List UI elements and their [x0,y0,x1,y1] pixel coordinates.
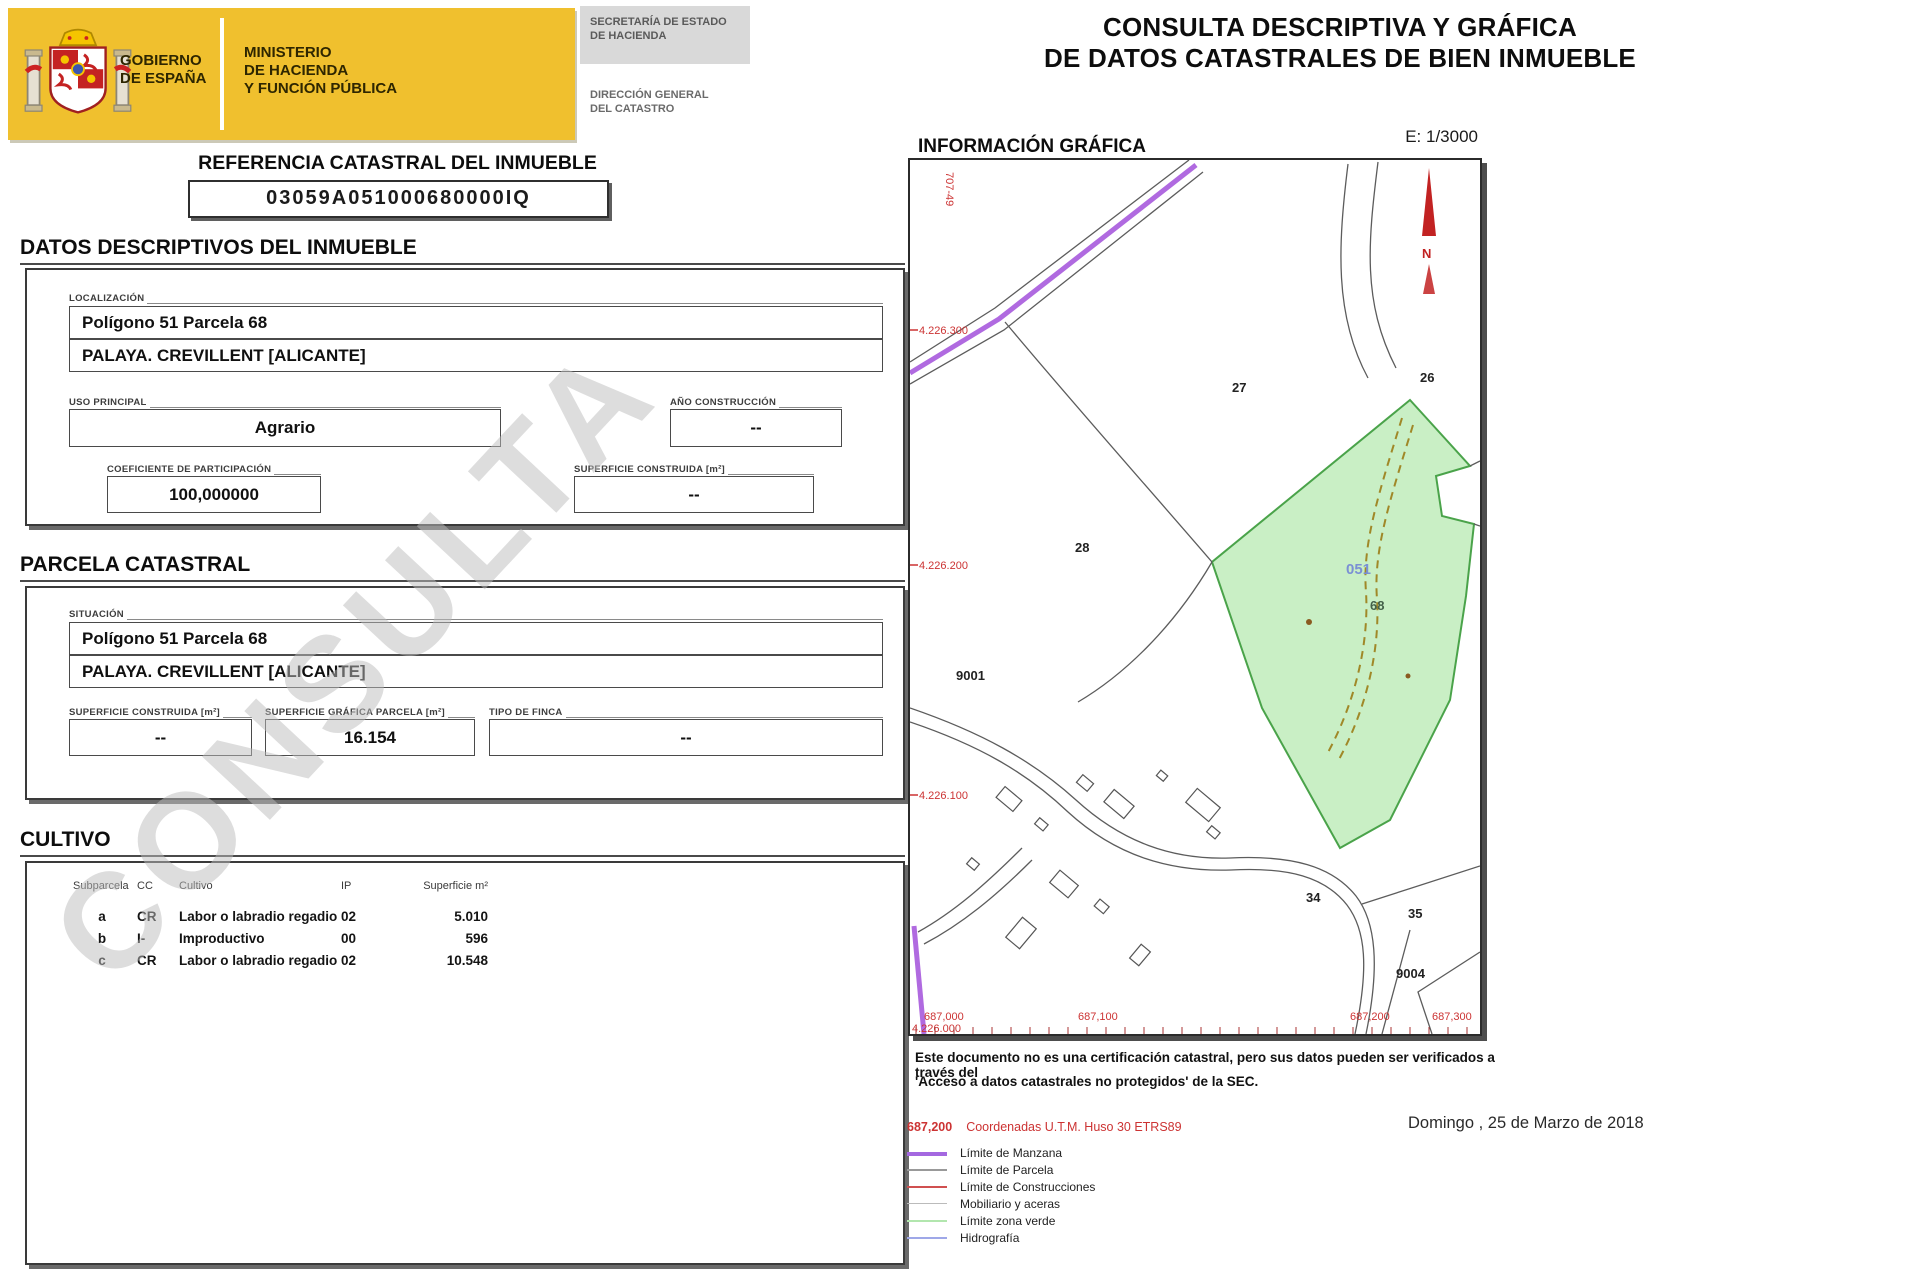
tipo-finca-label: TIPO DE FINCA [489,706,883,718]
sup-grafica-value: 16.154 [265,719,475,756]
parcel-051-green-area [1212,400,1474,848]
parcela-catastral-box: SITUACIÓN Polígono 51 Parcela 68 PALAYA.… [25,586,905,800]
coord-label: 687,000 [924,1011,964,1023]
situacion-label: SITUACIÓN [69,608,883,620]
road-label: 707-49 [943,172,955,206]
coord-label: 687,200 [1350,1011,1390,1023]
cultivo-box: Subparcela CC Cultivo IP Superficie m² a… [25,861,905,1265]
parcel-label-34: 34 [1306,890,1321,905]
parcel-label-051: 051 [1346,561,1371,578]
parcel-boundary [1362,866,1480,904]
ano-construccion-value: -- [670,409,842,447]
banner-divider [220,18,224,130]
sup-construida-value: -- [69,719,252,756]
cadastral-map: N 707-49 4.226.300 4.226.200 4.226.100 4… [910,160,1480,1034]
coord-label: 687,100 [1078,1011,1118,1023]
localizacion-label: LOCALIZACIÓN [69,292,883,304]
coeficiente-value: 100,000000 [107,476,321,513]
subparcel-marker [1406,674,1411,679]
cultivo-table-header: Subparcela CC Cultivo IP Superficie m² [67,873,488,899]
tipo-finca-value: -- [489,719,883,756]
ministerio-label: MINISTERIO DE HACIENDA Y FUNCIÓN PÚBLICA [244,44,494,98]
uso-principal-label: USO PRINCIPAL [69,396,501,408]
government-banner: GOBIERNO DE ESPAÑA MINISTERIO DE HACIEND… [8,8,575,140]
parcel-boundary [1078,562,1212,702]
parcel-label-9001: 9001 [956,668,985,683]
bottom-tick-marks [916,1027,1467,1034]
parcel-boundary [1474,524,1480,526]
document-title: CONSULTA DESCRIPTIVA Y GRÁFICA DE DATOS … [1020,12,1660,74]
coord-label: 4.226.100 [919,790,968,802]
coord-label: 4.226.300 [919,325,968,337]
parcel-label-27: 27 [1232,380,1246,395]
svg-text:N: N [1422,246,1431,261]
col-cultivo: Cultivo [179,880,341,892]
north-arrow-icon: N [1422,168,1436,294]
sup-grafica-label: SUPERFICIE GRÁFICA PARCELA [m²] [265,706,475,718]
referencia-catastral-heading: REFERENCIA CATASTRAL DEL INMUEBLE [130,152,665,175]
col-superficie: Superficie m² [393,880,488,892]
legend-coordinates: 687,200Coordenadas U.T.M. Huso 30 ETRS89 [907,1120,1182,1134]
col-cc: CC [137,880,179,892]
secretaria-estado-label: SECRETARÍA DE ESTADO DE HACIENDA [580,6,750,64]
parcela-catastral-heading: PARCELA CATASTRAL [20,553,905,582]
cadastral-document: CONSULTA GOBIERNO DE ESPAÑA [0,0,1920,1280]
legend-coord-sample: 687,200 [907,1120,952,1134]
localizacion-line2: PALAYA. CREVILLENT [ALICANTE] [69,339,883,372]
map-scale-label: E: 1/3000 [1385,127,1478,147]
localizacion-line1: Polígono 51 Parcela 68 [69,306,883,339]
parcel-boundary [1370,162,1396,368]
parcel-label-26: 26 [1420,370,1434,385]
manzana-swatch [907,1152,947,1156]
situacion-line2: PALAYA. CREVILLENT [ALICANTE] [69,655,883,688]
situacion-line1: Polígono 51 Parcela 68 [69,622,883,655]
ano-construccion-label: AÑO CONSTRUCCIÓN [670,396,842,408]
parcel-boundary [1005,322,1212,562]
datos-descriptivos-box: LOCALIZACIÓN Polígono 51 Parcela 68 PALA… [25,268,905,526]
mobiliario-swatch [907,1203,947,1204]
cadastral-map-frame: N 707-49 4.226.300 4.226.200 4.226.100 4… [908,158,1482,1036]
construcciones-swatch [907,1186,947,1188]
parcel-label-9004: 9004 [1396,966,1426,981]
limite-manzana-line-bottom [914,926,924,1034]
superficie-construida-label: SUPERFICIE CONSTRUIDA [m²] [574,463,814,475]
parcel-label-68: 68 [1370,598,1384,613]
coeficiente-label: COEFICIENTE DE PARTICIPACIÓN [107,463,321,475]
table-row: a CR Labor o labradio regadio 02 5.010 [67,905,488,927]
document-date: Domingo , 25 de Marzo de 2018 [1408,1114,1644,1133]
uso-principal-value: Agrario [69,409,501,447]
parcel-boundary [1470,461,1480,466]
subparcel-marker [1306,619,1312,625]
sup-construida-label: SUPERFICIE CONSTRUIDA [m²] [69,706,252,718]
informacion-grafica-heading: INFORMACIÓN GRÁFICA [916,136,1154,158]
col-subparcela: Subparcela [67,880,137,892]
parcela-swatch [907,1169,947,1171]
col-ip: IP [341,880,393,892]
parcel-label-35: 35 [1408,906,1422,921]
coord-label: 4.226.200 [919,560,968,572]
parcel-label-28: 28 [1075,540,1089,555]
legend-coord-label: Coordenadas U.T.M. Huso 30 ETRS89 [966,1120,1181,1134]
coord-label: 687,300 [1432,1011,1472,1023]
spain-coat-of-arms-icon [24,16,132,132]
table-row: c CR Labor o labradio regadio 02 10.548 [67,949,488,971]
hidrografia-swatch [907,1237,947,1239]
parcel-boundary [1341,164,1368,378]
cultivo-heading: CULTIVO [20,828,905,857]
table-row: b I- Improductivo 00 596 [67,927,488,949]
cultivo-table: Subparcela CC Cultivo IP Superficie m² a… [67,873,488,971]
referencia-catastral-value: 03059A051000680000IQ [188,180,609,218]
disclaimer-line2: 'Acceso a datos catastrales no protegido… [915,1074,1535,1089]
datos-descriptivos-heading: DATOS DESCRIPTIVOS DEL INMUEBLE [20,236,905,265]
gobierno-espana-label: GOBIERNO DE ESPAÑA [120,52,220,88]
superficie-construida-value: -- [574,476,814,513]
zona-verde-swatch [907,1220,947,1222]
direccion-general-catastro-label: DIRECCIÓN GENERAL DEL CATASTRO [590,88,760,116]
